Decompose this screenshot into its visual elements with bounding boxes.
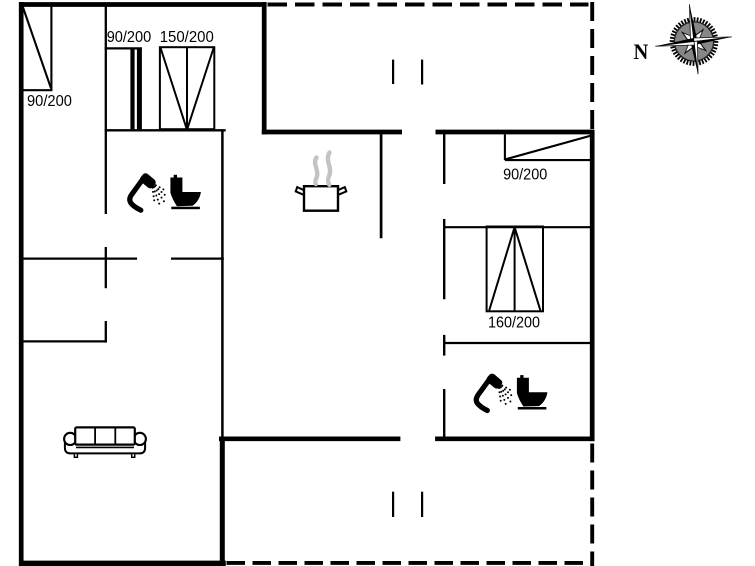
svg-text:N: N	[634, 39, 649, 64]
svg-text:150/200: 150/200	[160, 29, 214, 46]
svg-text:90/200: 90/200	[27, 93, 72, 110]
svg-text:90/200: 90/200	[107, 29, 152, 46]
svg-text:160/200: 160/200	[488, 315, 540, 332]
svg-text:90/200: 90/200	[503, 167, 548, 184]
